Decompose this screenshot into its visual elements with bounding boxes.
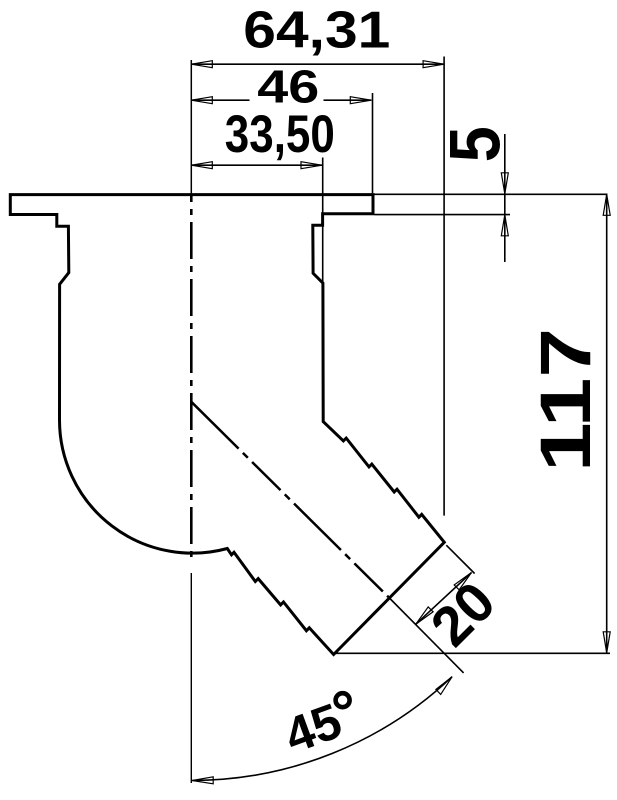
svg-text:117: 117 [527, 328, 606, 472]
svg-text:5: 5 [437, 126, 516, 162]
svg-text:46: 46 [257, 61, 319, 113]
svg-text:64,31: 64,31 [243, 2, 390, 60]
svg-text:33,50: 33,50 [225, 106, 335, 164]
